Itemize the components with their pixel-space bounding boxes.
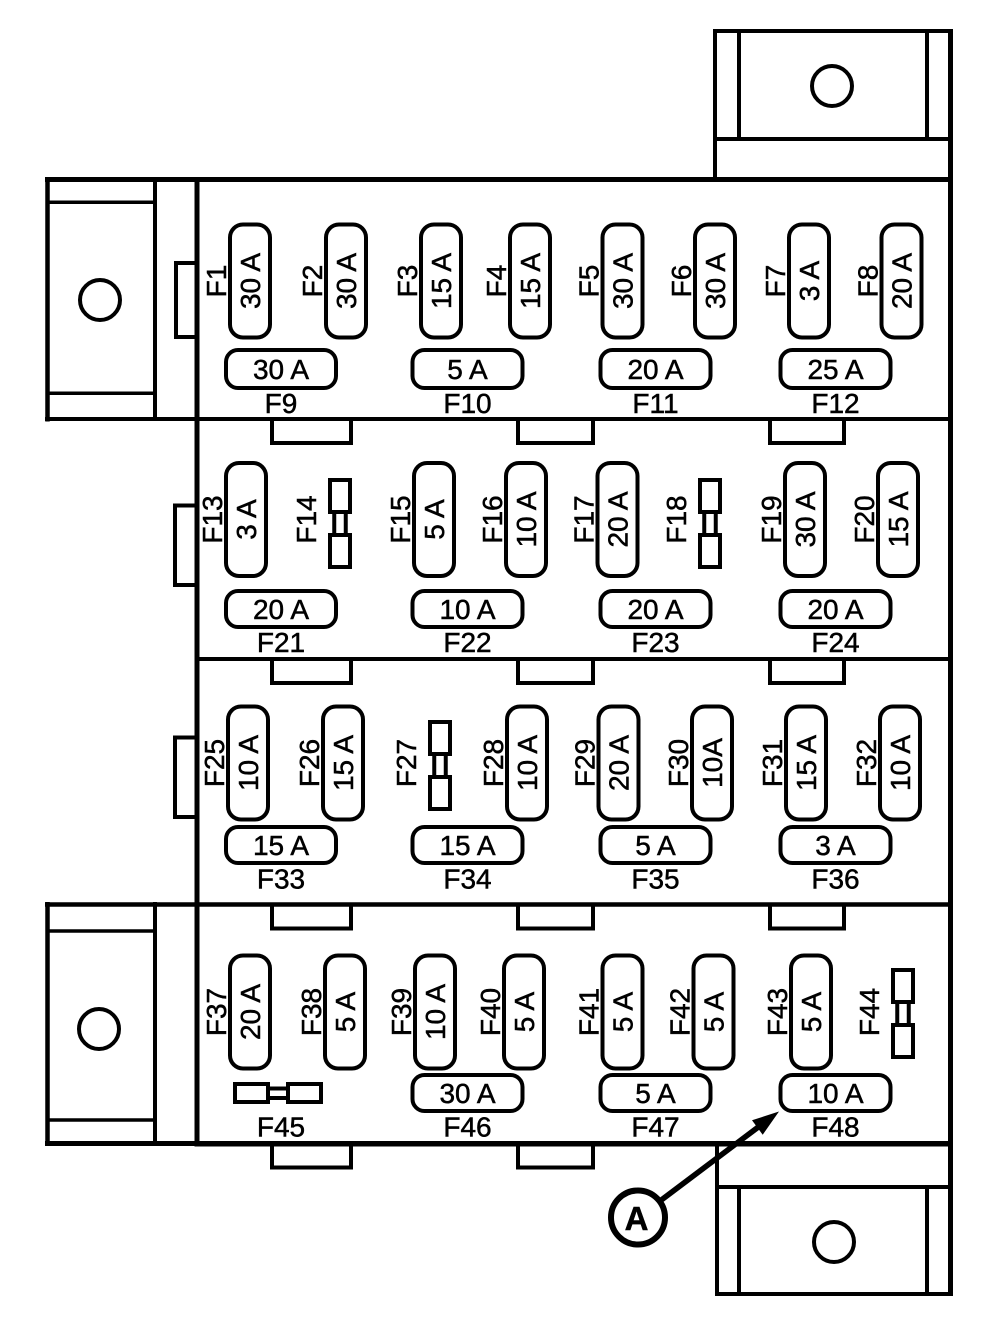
svg-text:20 A: 20 A [253, 594, 309, 625]
svg-text:F7: F7 [760, 265, 791, 298]
svg-text:F4: F4 [481, 265, 512, 298]
svg-text:A: A [625, 1200, 649, 1237]
svg-text:10A: 10A [697, 738, 728, 788]
svg-text:20 A: 20 A [627, 354, 683, 385]
svg-text:F22: F22 [443, 627, 491, 658]
svg-text:15 A: 15 A [328, 735, 359, 791]
svg-text:5 A: 5 A [608, 991, 639, 1032]
svg-text:10 A: 10 A [512, 735, 543, 791]
svg-text:F38: F38 [296, 988, 327, 1036]
svg-text:F46: F46 [443, 1112, 491, 1143]
svg-text:20 A: 20 A [887, 253, 918, 309]
svg-text:3 A: 3 A [794, 260, 825, 301]
svg-text:30 A: 30 A [331, 253, 362, 309]
svg-text:30 A: 30 A [700, 253, 731, 309]
svg-text:5 A: 5 A [419, 499, 450, 540]
svg-text:10 A: 10 A [885, 735, 916, 791]
svg-text:F29: F29 [570, 739, 601, 787]
svg-text:F6: F6 [666, 265, 697, 298]
svg-text:F24: F24 [811, 627, 859, 658]
svg-text:F18: F18 [661, 495, 692, 543]
svg-text:F33: F33 [257, 864, 305, 895]
svg-text:25 A: 25 A [807, 354, 863, 385]
svg-text:F41: F41 [574, 988, 605, 1036]
svg-text:F42: F42 [665, 988, 696, 1036]
svg-text:15 A: 15 A [439, 830, 495, 861]
svg-text:F27: F27 [391, 739, 422, 787]
svg-text:30 A: 30 A [253, 354, 309, 385]
svg-text:F15: F15 [385, 495, 416, 543]
svg-text:F26: F26 [294, 739, 325, 787]
svg-text:3 A: 3 A [231, 499, 262, 540]
svg-text:5 A: 5 A [447, 354, 488, 385]
svg-text:20 A: 20 A [235, 984, 266, 1040]
svg-text:F13: F13 [197, 495, 228, 543]
svg-text:5 A: 5 A [635, 1078, 676, 1109]
svg-text:15 A: 15 A [791, 735, 822, 791]
svg-text:F14: F14 [291, 495, 322, 543]
svg-text:10 A: 10 A [511, 491, 542, 547]
svg-text:F19: F19 [756, 495, 787, 543]
svg-text:20 A: 20 A [603, 491, 634, 547]
svg-text:F44: F44 [854, 988, 885, 1036]
svg-text:F1: F1 [201, 265, 232, 298]
svg-text:10 A: 10 A [807, 1078, 863, 1109]
svg-text:F23: F23 [631, 627, 679, 658]
svg-text:F8: F8 [853, 265, 884, 298]
svg-text:F45: F45 [257, 1112, 305, 1143]
svg-text:5 A: 5 A [699, 991, 730, 1032]
svg-text:20 A: 20 A [807, 594, 863, 625]
svg-text:10 A: 10 A [233, 735, 264, 791]
svg-text:30 A: 30 A [608, 253, 639, 309]
svg-text:F10: F10 [443, 388, 491, 419]
svg-text:F5: F5 [574, 265, 605, 298]
svg-text:15 A: 15 A [253, 830, 309, 861]
svg-text:3 A: 3 A [815, 830, 856, 861]
svg-text:F12: F12 [811, 388, 859, 419]
svg-text:F36: F36 [811, 864, 859, 895]
svg-text:5 A: 5 A [509, 991, 540, 1032]
svg-text:F11: F11 [632, 388, 678, 419]
svg-text:15 A: 15 A [515, 253, 546, 309]
svg-text:F40: F40 [475, 988, 506, 1036]
svg-text:15 A: 15 A [883, 491, 914, 547]
svg-text:F32: F32 [851, 739, 882, 787]
svg-text:30 A: 30 A [439, 1078, 495, 1109]
svg-text:F28: F28 [478, 739, 509, 787]
svg-text:5 A: 5 A [330, 991, 361, 1032]
svg-text:10 A: 10 A [420, 984, 451, 1040]
svg-text:F21: F21 [257, 627, 305, 658]
svg-text:F30: F30 [663, 739, 694, 787]
svg-text:F39: F39 [386, 988, 417, 1036]
svg-text:F34: F34 [443, 864, 491, 895]
svg-text:F16: F16 [477, 495, 508, 543]
svg-text:F37: F37 [201, 988, 232, 1036]
svg-text:F17: F17 [569, 495, 600, 543]
svg-text:F31: F31 [757, 739, 788, 787]
svg-text:30 A: 30 A [235, 253, 266, 309]
svg-text:10 A: 10 A [439, 594, 495, 625]
svg-text:5 A: 5 A [796, 991, 827, 1032]
svg-text:30 A: 30 A [790, 491, 821, 547]
svg-text:20 A: 20 A [604, 735, 635, 791]
svg-text:F35: F35 [631, 864, 679, 895]
svg-text:F48: F48 [811, 1112, 859, 1143]
svg-text:F2: F2 [297, 265, 328, 298]
svg-text:F9: F9 [265, 388, 298, 419]
svg-text:F20: F20 [849, 495, 880, 543]
svg-text:F25: F25 [199, 739, 230, 787]
svg-text:20 A: 20 A [627, 594, 683, 625]
svg-text:F47: F47 [631, 1112, 679, 1143]
svg-text:F3: F3 [392, 265, 423, 298]
svg-text:15 A: 15 A [426, 253, 457, 309]
svg-text:5 A: 5 A [635, 830, 676, 861]
svg-text:F43: F43 [762, 988, 793, 1036]
